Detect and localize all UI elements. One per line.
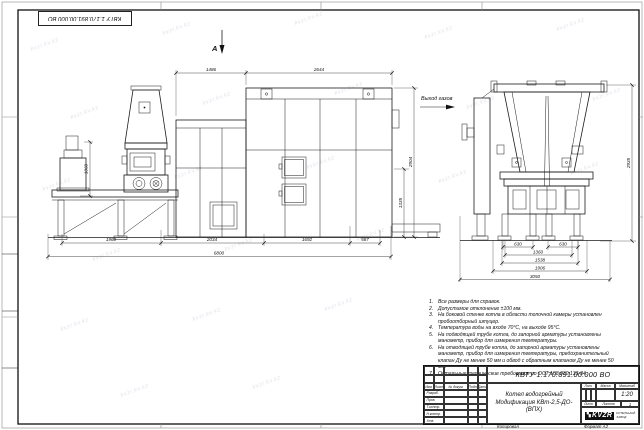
dim-front-top-2: 2644	[313, 67, 325, 72]
doc-number-top: КВТУ 1.170.891.00.000 ВО	[48, 15, 121, 21]
row-tkontr: Т.контр.	[424, 404, 444, 411]
dim-end-height: 2935	[626, 157, 631, 169]
row-utv: Утв.	[424, 417, 444, 424]
drawing-sheet: kvzr.kv.kz kvzr.kv.kz kvzr.kv.kz kvzr.kv…	[0, 0, 644, 430]
col-izm: Изм.	[424, 383, 434, 390]
dim-end-1: 630	[514, 242, 522, 247]
mass-cell	[596, 389, 615, 401]
kvzr-logo-text: KVZR	[592, 412, 612, 419]
dim-front-bottom-1: 1960	[106, 237, 117, 242]
revision-cell	[444, 375, 468, 384]
annotations: А Выход газов	[211, 30, 455, 109]
col-doc: № докум.	[444, 383, 468, 390]
revision-cell	[478, 375, 487, 384]
title-doc-number: КВТУ 1.170.891.00.000 ВО	[487, 366, 639, 383]
dim-end-2: 630	[559, 242, 567, 247]
dim-end-4: 1538	[535, 258, 546, 263]
sig-cell	[444, 417, 468, 424]
sig-cell	[444, 404, 468, 411]
row-nkontr: Н.контр.	[424, 410, 444, 417]
sig-cell	[468, 404, 478, 411]
revision-cell	[478, 366, 487, 375]
dim-front-top-1: 1486	[206, 67, 217, 72]
doc-number-box-top: КВТУ 1.170.891.00.000 ВО	[38, 11, 132, 26]
sig-cell	[478, 390, 487, 397]
gas-outlet-label: Выход газов	[421, 96, 453, 102]
col-podp: Подп.	[468, 383, 478, 390]
revision-cell	[468, 366, 478, 375]
view-arrow-label: А	[211, 44, 217, 53]
company-name: КОТЕЛЬНЫЙ ЗАВОД	[616, 412, 635, 419]
note-number: 3.	[429, 312, 438, 325]
sig-cell	[468, 410, 478, 417]
product-name: Котел водогрейный Модификация КВт-2,5-ДО…	[487, 383, 581, 424]
sig-cell	[468, 390, 478, 397]
row-prov: Пров.	[424, 397, 444, 404]
company-cell: ▚ KVZR КОТЕЛЬНЫЙ ЗАВОД	[581, 407, 639, 424]
revision-cell	[444, 366, 468, 375]
dim-front-bottom-4: 587	[361, 237, 369, 242]
revision-cell	[424, 375, 434, 384]
revision-cell	[424, 366, 434, 375]
dim-front-bottom-3: 1692	[302, 237, 313, 242]
sig-cell	[468, 397, 478, 404]
end-view	[460, 81, 612, 241]
kvzr-logo-mark-icon: ▚	[587, 412, 591, 418]
note-text: На подводящей трубе котла, до запорной а…	[438, 332, 615, 345]
scale-value: 1:20	[615, 389, 639, 401]
revision-cell	[434, 375, 444, 384]
product-name-line1: Котел водогрейный	[505, 392, 562, 400]
sig-cell	[444, 410, 468, 417]
dim-pedestal-height: 1060	[84, 163, 89, 174]
sig-cell	[478, 417, 487, 424]
front-view	[48, 86, 440, 240]
sig-cell	[478, 404, 487, 411]
dim-lower-height: 1335	[398, 197, 403, 208]
sig-cell	[444, 397, 468, 404]
col-data: Дата	[478, 383, 487, 390]
sig-cell	[468, 417, 478, 424]
col-list: Лист	[434, 383, 444, 390]
note-number: 5.	[429, 332, 438, 345]
note-text: На боковой стенке котла в области топочн…	[438, 312, 615, 325]
copied-label: Копировал	[497, 424, 519, 429]
revision-cell	[468, 375, 478, 384]
view-direction-arrow-icon	[220, 45, 225, 54]
kvzr-logo: ▚ KVZR	[585, 412, 614, 420]
title-block: Изм. Лист № докум. Подп. Дата Разраб. Пр…	[424, 366, 639, 424]
dim-end-3: 1360	[533, 250, 544, 255]
note-item: 5. На подводящей трубе котла, до запорно…	[429, 332, 615, 345]
dim-front-bottom-2: 2034	[206, 237, 218, 242]
revision-cell	[434, 366, 444, 375]
note-item: 3. На боковой стенке котла в области топ…	[429, 312, 615, 325]
sig-cell	[478, 410, 487, 417]
sig-cell	[478, 397, 487, 404]
format-label: Формат А2	[584, 424, 608, 429]
dim-overall-width: 6800	[214, 251, 225, 256]
product-name-line2: Модификация КВт-2,5-ДО-(ВПХ)	[488, 400, 580, 415]
row-razrab: Разраб.	[424, 390, 444, 397]
dim-end-overall: 3050	[530, 274, 541, 279]
dim-end-5: 1906	[535, 266, 546, 271]
company-name-line2: ЗАВОД	[616, 416, 635, 419]
gas-outlet-arrow-icon	[446, 105, 455, 110]
sig-cell	[444, 390, 468, 397]
dim-boiler-height: 2904	[408, 156, 413, 168]
